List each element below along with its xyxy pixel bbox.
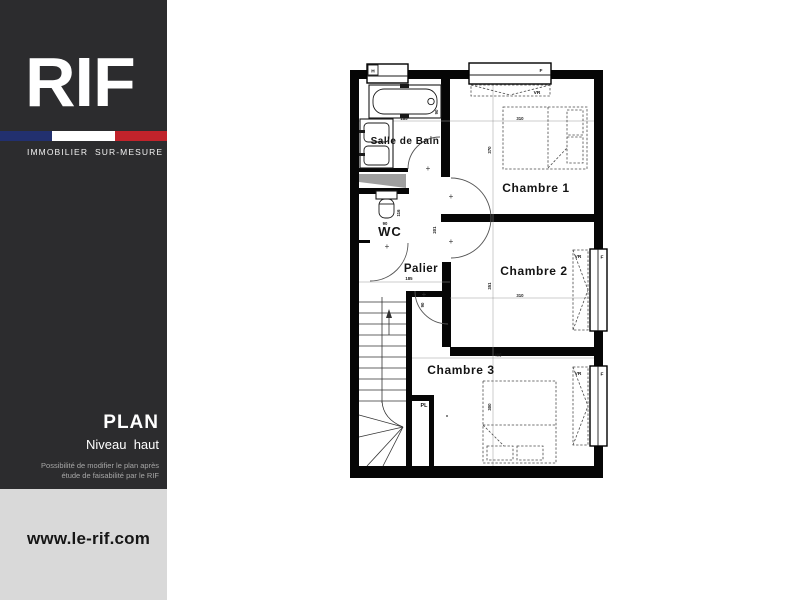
room-label-chambre2: Chambre 2 (500, 264, 567, 278)
svg-text:+: + (422, 290, 427, 299)
window-h-top: H (367, 64, 408, 83)
company-tagline: IMMOBILIER SUR-MESURE (27, 147, 163, 157)
svg-text:201: 201 (432, 226, 437, 234)
svg-text:H: H (371, 69, 375, 75)
plan-disclaimer-line2: étude de faisabilité par le RIF (41, 471, 159, 481)
plan-disclaimer-line1: Possibilité de modifier le plan après (41, 461, 159, 471)
bed-chambre3 (446, 381, 556, 463)
plan-title-block: PLAN Niveau haut Possibilité de modifier… (41, 412, 159, 480)
svg-text:F: F (540, 68, 543, 74)
flag-white-segment (52, 131, 115, 141)
svg-text:116: 116 (396, 209, 401, 217)
svg-text:370: 370 (487, 146, 492, 154)
svg-text:+: + (449, 192, 454, 201)
svg-text:F: F (601, 372, 604, 378)
toilet (376, 191, 397, 218)
footer-panel: www.le-rif.com (0, 489, 167, 600)
svg-text:F: F (601, 255, 604, 261)
floor-plan: H F VR VR F VR F (330, 50, 620, 490)
staircase (359, 297, 406, 466)
flag-red-segment (115, 131, 167, 141)
room-label-wc: WC (378, 224, 402, 239)
tricolor-flag-bar (0, 131, 167, 141)
bathtub (369, 84, 441, 118)
svg-text:VR: VR (534, 90, 541, 96)
flag-blue-segment (0, 131, 52, 141)
svg-text:310: 310 (516, 293, 524, 298)
room-label-salle-de-bain: Salle de Bain (371, 136, 440, 147)
room-label-palier: Palier (404, 263, 438, 275)
room-label-placard: PL (421, 403, 429, 409)
svg-text:351: 351 (487, 282, 492, 290)
window-f-top: F VR (469, 63, 551, 96)
plan-subtitle: Niveau haut (41, 437, 159, 452)
svg-text:185: 185 (405, 276, 413, 281)
rif-logo: RIF (25, 50, 135, 114)
room-label-chambre1: Chambre 1 (502, 181, 569, 195)
svg-text:300: 300 (487, 403, 492, 411)
room-label-chambre3: Chambre 3 (427, 363, 494, 377)
svg-text:90: 90 (434, 109, 439, 114)
svg-text:+: + (449, 237, 454, 246)
sidebar: RIF IMMOBILIER SUR-MESURE PLAN Niveau ha… (0, 0, 167, 489)
plan-title: PLAN (41, 412, 159, 434)
svg-text:+: + (426, 164, 431, 173)
plan-disclaimer: Possibilité de modifier le plan après ét… (41, 461, 159, 480)
shaft-hatch (359, 174, 406, 188)
svg-text:VR: VR (575, 254, 582, 260)
svg-text:185: 185 (400, 116, 408, 121)
window-f-chambre2: VR F (573, 249, 607, 331)
svg-text:90: 90 (420, 302, 425, 307)
svg-text:VR: VR (575, 371, 582, 377)
svg-text:310: 310 (516, 116, 524, 121)
svg-text:405: 405 (494, 353, 502, 358)
window-f-chambre3: VR F (573, 366, 607, 446)
svg-text:+: + (385, 242, 390, 251)
website-url: www.le-rif.com (27, 529, 150, 549)
